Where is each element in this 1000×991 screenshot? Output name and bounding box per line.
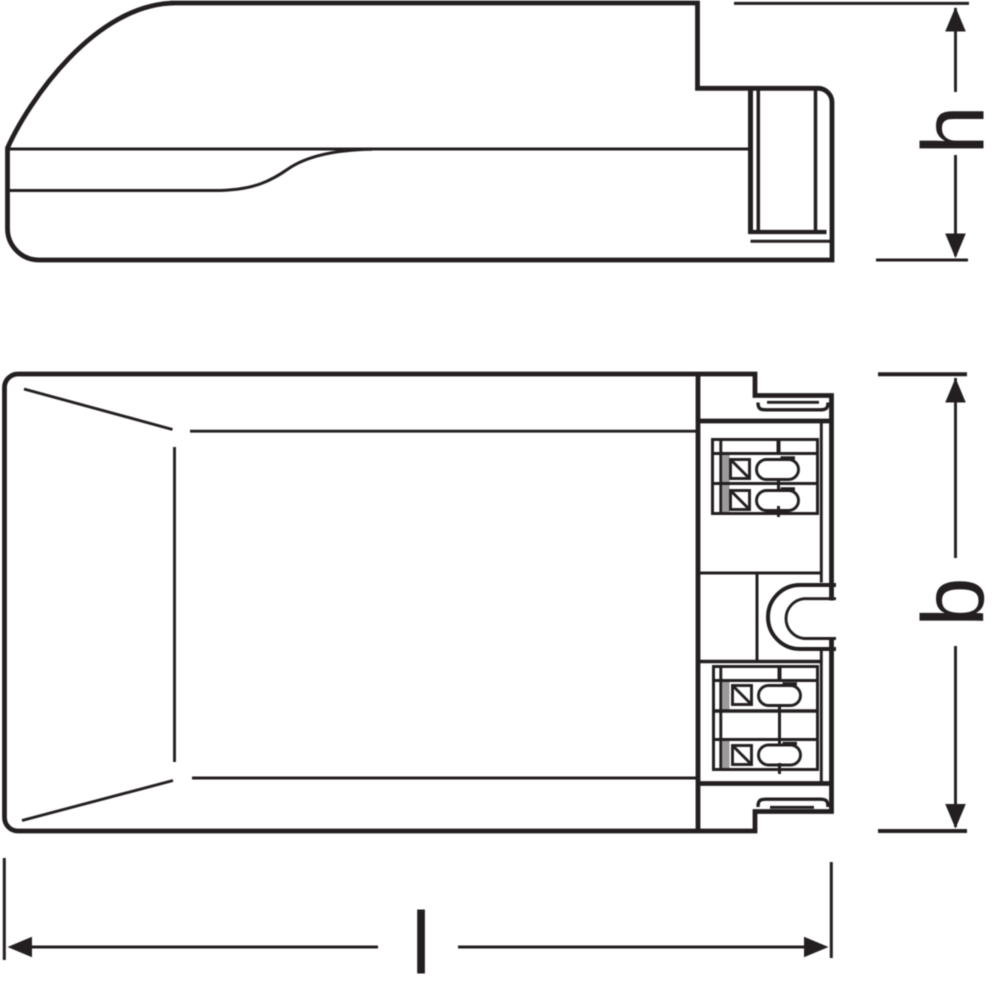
svg-text:h: h: [904, 106, 1000, 155]
svg-text:b: b: [904, 578, 1000, 627]
svg-text:l: l: [411, 894, 431, 991]
